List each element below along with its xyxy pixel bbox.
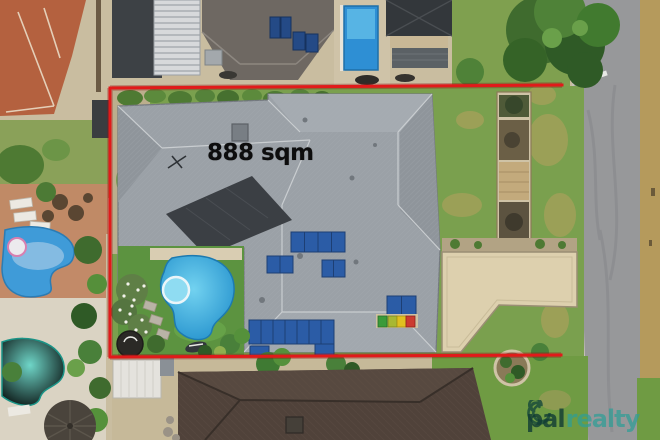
solar-array <box>267 256 293 273</box>
corrugated-roof <box>154 0 200 75</box>
small-tree <box>456 58 484 86</box>
pavilion-roof <box>386 0 452 36</box>
chimney <box>232 124 248 141</box>
verge-dry-grass <box>640 0 660 440</box>
spa <box>163 277 189 303</box>
verge-post <box>649 240 652 246</box>
verge-post <box>651 188 655 196</box>
kayak-rack <box>376 314 418 328</box>
garden-bed-strip <box>442 238 577 252</box>
roadside-verge <box>637 0 660 440</box>
aerial-photo: 888 sqm palrealty <box>0 0 660 440</box>
solar-array <box>322 260 345 277</box>
patio-tree <box>36 182 56 202</box>
brown-tiled-roof <box>178 368 491 440</box>
verge-green-grass <box>637 378 660 440</box>
pool-float <box>8 238 26 256</box>
agency-watermark: palrealty <box>526 400 639 438</box>
top-neighbor-houses <box>112 0 570 88</box>
fence-line <box>96 0 101 92</box>
lap-pool-highlight <box>347 9 375 39</box>
pool-courtyard <box>111 246 250 359</box>
garage-roof <box>113 360 161 398</box>
verandah <box>390 36 448 48</box>
aerial-photo-canvas <box>0 0 660 440</box>
patio-roof <box>392 48 448 68</box>
area-size-label: 888 sqm <box>207 140 314 166</box>
solar-array <box>249 320 334 344</box>
ac-unit <box>205 50 222 65</box>
watermark-brand-suffix: realty <box>566 407 640 431</box>
trampoline <box>117 331 143 357</box>
solar-array <box>387 296 416 315</box>
garden-path-column <box>497 92 531 252</box>
solar-array <box>291 232 345 252</box>
neighbor-bush <box>42 139 70 161</box>
watermark-brand-prefix: pal <box>526 407 565 431</box>
bottom-chimney <box>286 417 303 433</box>
